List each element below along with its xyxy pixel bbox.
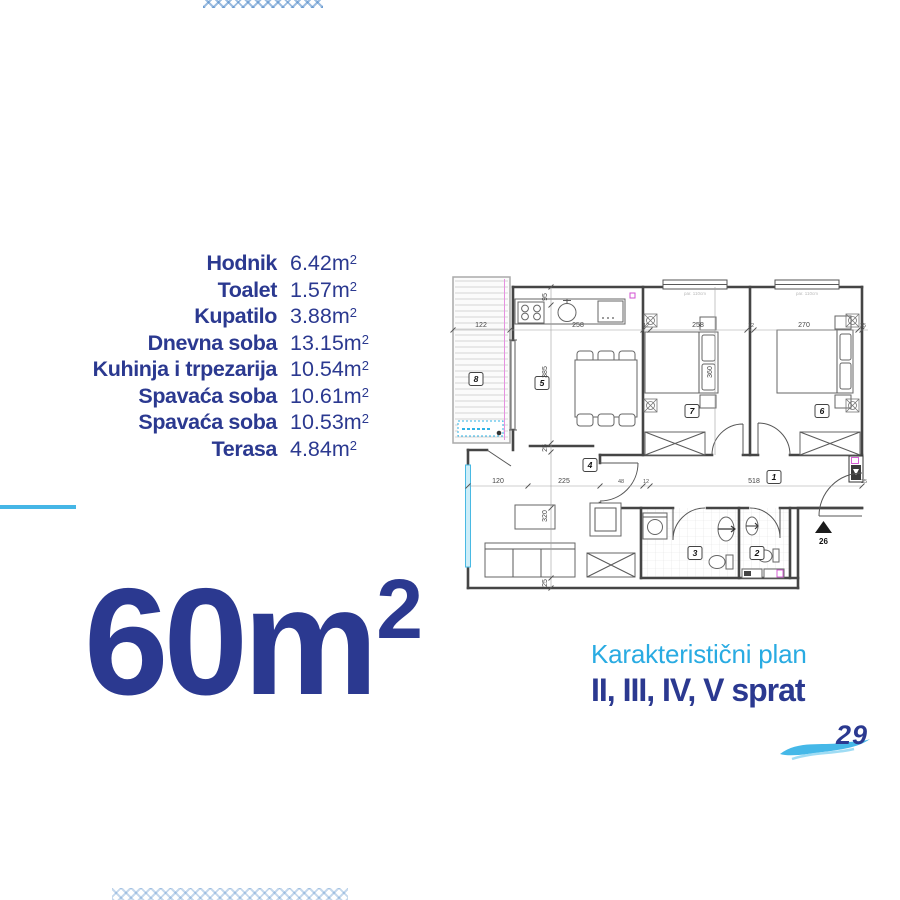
total-area-sup: 2 (376, 562, 423, 656)
bathroom-toilet (709, 556, 725, 569)
terrace (453, 277, 510, 443)
plan-dimension-label: 258 (572, 322, 584, 329)
socket-symbol (630, 293, 635, 298)
plan-dimension-label: 518 (748, 478, 760, 485)
dining-table (575, 360, 637, 417)
plan-dimension-label: 25 (542, 444, 549, 452)
bedroom7-furniture (645, 317, 718, 455)
coffee-table (515, 505, 555, 529)
kitchen-appliance (598, 301, 623, 322)
room-marker-number: 5 (540, 378, 545, 388)
plan-dimension-label: par. 110cm (684, 291, 706, 296)
plan-dimension-label: 122 (475, 322, 487, 329)
plan-dimension-label: 385 (542, 366, 549, 378)
plan-dimension-label: 95 (542, 293, 549, 301)
plan-dimension-label: 12 (643, 323, 649, 329)
room-area: 6.42m2 (290, 251, 357, 276)
entrance-label: 26 (819, 537, 828, 546)
divider-line (0, 505, 76, 509)
nightstand (700, 395, 716, 408)
dining-set (575, 351, 637, 426)
room-name: Spavaća soba (55, 384, 277, 409)
room-name: Kupatilo (55, 304, 277, 329)
room-row: Dnevna soba13.15m2 (55, 331, 390, 358)
plan-dimension-label: 225 (558, 478, 570, 485)
room-marker-number: 3 (693, 548, 698, 558)
decor-pattern-bottom (112, 888, 348, 900)
room-area: 1.57m2 (290, 278, 357, 303)
room-name: Toalet (55, 278, 277, 303)
sink (558, 304, 576, 322)
living-room-furniture (485, 450, 635, 577)
plan-dimension-label: par. 110cm (796, 291, 818, 296)
room-row: Hodnik6.42m2 (55, 251, 390, 278)
room-row: Spavaća soba10.61m2 (55, 384, 390, 411)
total-area-unit: m (243, 557, 373, 727)
caption-line1: Karakteristični plan (591, 639, 807, 670)
sofa (485, 543, 575, 577)
room-area: 10.54m2 (290, 357, 369, 382)
room-marker-number: 6 (820, 406, 825, 416)
room-marker-number: 4 (587, 460, 593, 470)
stove (518, 302, 544, 323)
room-name: Terasa (55, 437, 277, 462)
terrace-door-leaf (487, 450, 511, 466)
plan-caption: Karakteristični plan II, III, IV, V spra… (591, 639, 807, 709)
room-name: Dnevna soba (55, 331, 277, 356)
plan-dimension-label: 12 (643, 479, 649, 485)
room-area: 10.53m2 (290, 410, 369, 435)
room-row: Terasa4.84m2 (55, 437, 390, 464)
entrance-arrow (815, 521, 832, 533)
floor-plan: 85476132 1222581225812270251202254812518… (447, 272, 877, 592)
room-name: Spavaća soba (55, 410, 277, 435)
brochure-page: Hodnik6.42m2Toalet1.57m2Kupatilo3.88m2Dn… (0, 0, 900, 900)
plan-dimension-label: 258 (692, 322, 704, 329)
plan-dimension-label: 25 (542, 579, 549, 587)
room-name: Hodnik (55, 251, 277, 276)
room-area: 13.15m2 (290, 331, 369, 356)
room-list: Hodnik6.42m2Toalet1.57m2Kupatilo3.88m2Dn… (55, 251, 390, 463)
plan-dimension-label: 320 (542, 510, 549, 522)
room-name: Kuhinja i trpezarija (55, 357, 277, 382)
plan-dimension-label: 360 (707, 366, 714, 378)
plan-dimension-label: 120 (492, 478, 504, 485)
room-row: Spavaća soba10.53m2 (55, 410, 390, 437)
caption-line2: II, III, IV, V sprat (591, 672, 807, 709)
plan-dimension-label: 25 (861, 479, 867, 485)
living-room-window (466, 465, 471, 567)
bedroom6-furniture (777, 316, 860, 455)
room-marker-number: 2 (754, 548, 760, 558)
room-area: 3.88m2 (290, 304, 357, 329)
total-area: 60m2 (84, 566, 423, 718)
room-row: Kuhinja i trpezarija10.54m2 (55, 357, 390, 384)
page-number: 29 (836, 720, 868, 751)
room-area: 4.84m2 (290, 437, 357, 462)
room-marker-number: 8 (474, 374, 479, 384)
plan-dimension-label: 12 (748, 323, 754, 329)
bedroom6-door (758, 423, 790, 455)
decor-pattern-top (203, 0, 323, 8)
kitchen-fixtures (515, 299, 625, 325)
room-marker-number: 1 (772, 472, 777, 482)
bedroom7-door (712, 424, 743, 455)
room-row: Kupatilo3.88m2 (55, 304, 390, 331)
plan-dimension-label: 25 (860, 323, 866, 329)
total-area-number: 60 (84, 557, 243, 727)
plan-dimension-label: 270 (798, 322, 810, 329)
page-footer-logo: 29 (778, 720, 874, 770)
plan-dimension-label: 48 (618, 479, 624, 485)
room-row: Toalet1.57m2 (55, 278, 390, 305)
room-area: 10.61m2 (290, 384, 369, 409)
